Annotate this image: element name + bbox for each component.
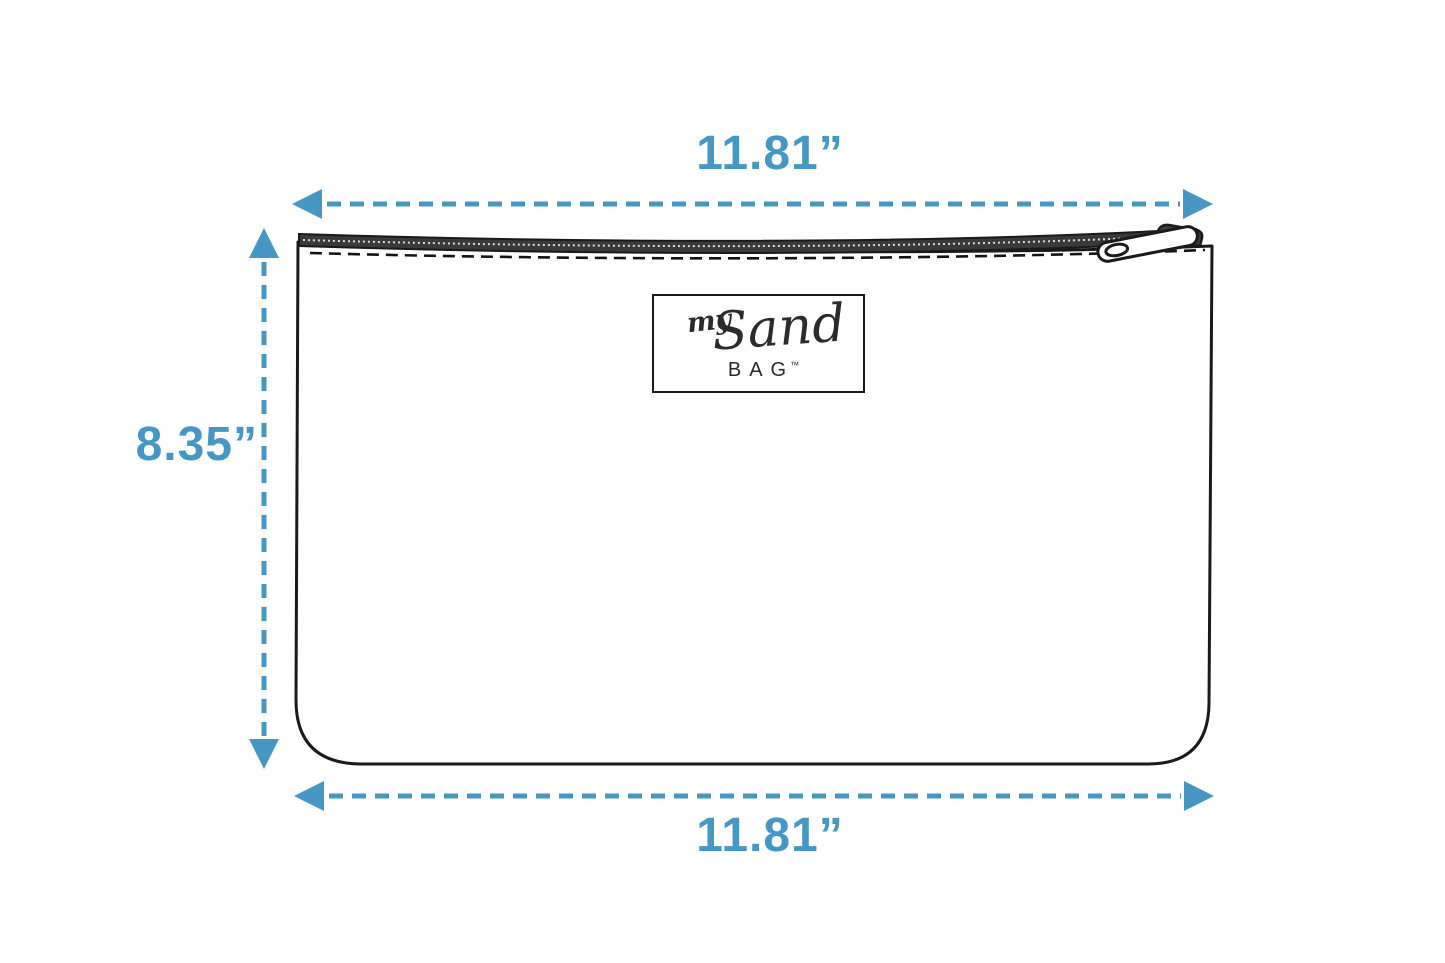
dimension-diagram: 11.81” 8.35” 11.81” my Sand BAG™: [0, 0, 1445, 963]
height-arrow: [249, 228, 279, 769]
logo-word-sand: Sand: [710, 297, 847, 358]
arrow-down-icon: [249, 739, 279, 769]
arrow-left-icon: [294, 781, 324, 811]
width-arrow-top: [292, 189, 1213, 219]
height-label: 8.35”: [40, 421, 258, 469]
logo-word-bag: BAG™: [654, 359, 863, 382]
arrow-left-icon: [292, 189, 322, 219]
arrow-up-icon: [249, 228, 279, 258]
bottom-width-label: 11.81”: [520, 812, 1020, 860]
top-width-label: 11.81”: [520, 130, 1020, 178]
arrow-right-icon: [1183, 189, 1213, 219]
trademark-symbol: ™: [790, 360, 799, 370]
width-arrow-bottom: [294, 781, 1214, 811]
arrow-right-icon: [1184, 781, 1214, 811]
brand-label-patch: my Sand BAG™: [652, 294, 865, 393]
